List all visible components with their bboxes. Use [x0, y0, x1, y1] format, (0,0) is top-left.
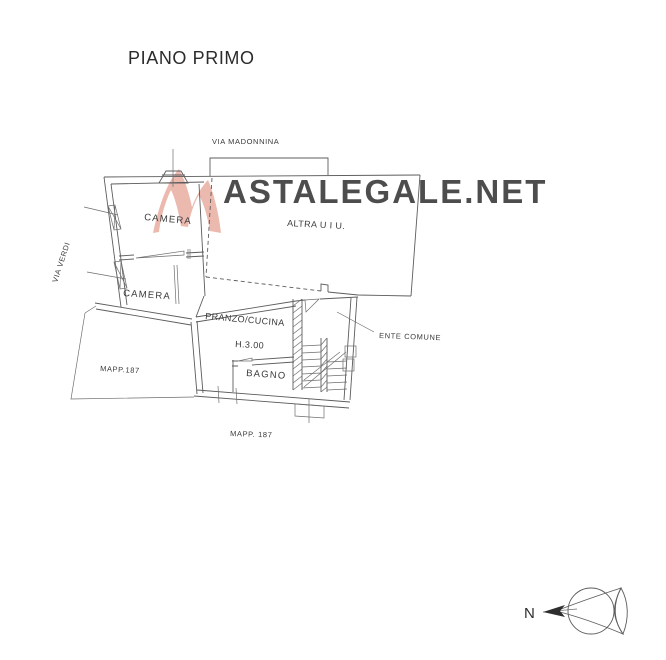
room-label-camera-2: CAMERA: [123, 288, 172, 302]
parcel-label-mapp187-bottom: MAPP. 187: [230, 429, 273, 439]
room-label-bagno: BAGNO: [246, 368, 287, 382]
room-label-pranzo-cucina: PRANZO/CUCINA: [205, 311, 285, 328]
north-label: N: [524, 605, 535, 622]
floor-plan-drawing: ASTALEGALE.NET: [0, 0, 666, 660]
parcel-label-mapp187-left: MAPP.187: [100, 364, 140, 375]
floor-plan-page: PIANO PRIMO ASTALEGALE.NET: [0, 0, 666, 660]
room-label-altra-uiu: ALTRA U I U.: [287, 218, 346, 231]
watermark-text: ASTALEGALE.NET: [223, 173, 547, 210]
street-label-via-madonnina: VIA MADONNINA: [212, 137, 279, 146]
compass: N: [524, 588, 627, 634]
compass-rose-icon: [556, 588, 623, 634]
label-ente-comune: ENTE COMUNE: [379, 331, 441, 342]
height-annotation: H.3.00: [235, 339, 264, 350]
street-label-via-verdi: VIA VERDI: [50, 241, 72, 284]
compass-arrow-tip: [543, 605, 565, 617]
